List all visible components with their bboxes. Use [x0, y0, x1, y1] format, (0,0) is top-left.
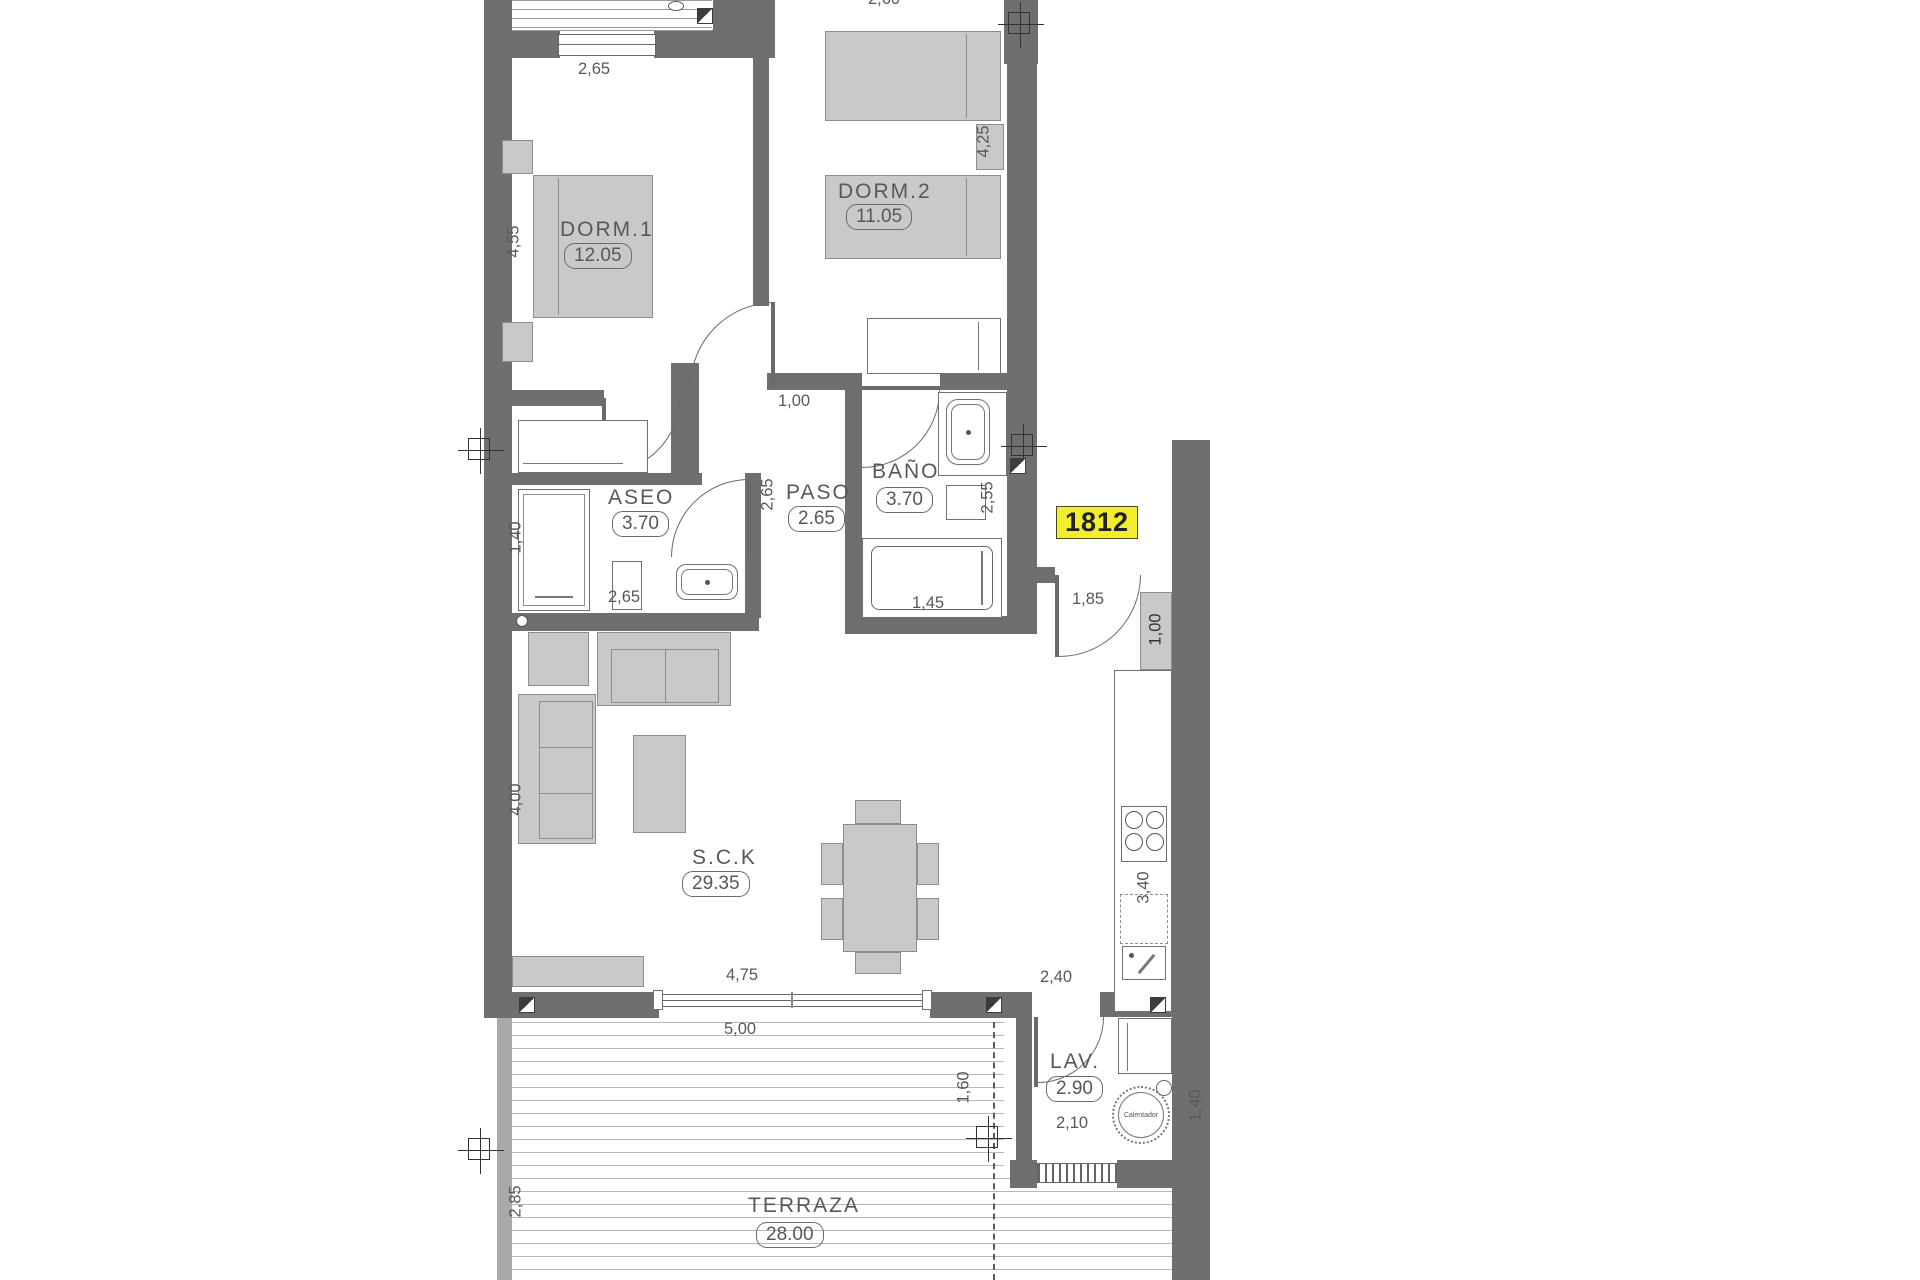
dim-lav-width: 2,10 — [1056, 1114, 1088, 1133]
room-label-dorm2: DORM.2 — [838, 180, 932, 204]
room-label-terraza: TERRAZA — [748, 1194, 860, 1218]
survey-marker-icon — [966, 1116, 1012, 1162]
room-label-bano: BAÑO — [872, 460, 940, 484]
section-marker-icon — [519, 997, 535, 1013]
living-armchair — [528, 632, 589, 686]
room-area-dorm1: 12.05 — [564, 243, 632, 269]
aseo-sink — [676, 564, 738, 600]
room-area-salon: 29.35 — [682, 871, 750, 897]
slider-cap-left — [653, 990, 663, 1010]
entry-door-arc — [1059, 575, 1141, 657]
room-area-terraza: 28.00 — [756, 1222, 824, 1248]
dorm2-door-arc — [690, 302, 775, 387]
wall-aseo-bottom — [512, 613, 759, 631]
wall-dorm1-window-left — [512, 30, 560, 58]
dining-chair-top — [855, 800, 901, 824]
dorm1-wardrobe — [518, 420, 648, 473]
room-label-lav: LAV. — [1050, 1050, 1100, 1074]
wall-lav-bottom-left — [1010, 1160, 1037, 1188]
wall-dorm2-bottom-left — [767, 373, 862, 390]
wall-dorm2-bottom-right — [940, 373, 1007, 390]
aseo-door-arc — [671, 479, 749, 557]
dorm1-nightstand-bottom — [502, 322, 533, 362]
bano-sink — [946, 399, 990, 465]
dim-bano-depth: 2,55 — [979, 481, 998, 513]
lav-window — [1037, 1163, 1117, 1183]
room-area-paso: 2.65 — [788, 506, 845, 532]
dim-kitchen-width: 2,40 — [1040, 968, 1072, 987]
wall-living-bottom-right — [930, 992, 1032, 1018]
survey-marker-icon — [458, 428, 504, 474]
dim-terrace-width: 5,00 — [724, 1020, 756, 1039]
room-label-dorm1: DORM.1 — [560, 218, 654, 242]
dim-dorm2-top-partial: 2,60 — [868, 0, 900, 9]
slider-cap-right — [922, 990, 932, 1010]
dim-kitchen-length: 3,40 — [1135, 871, 1154, 903]
dorm2-bed-1 — [825, 31, 1001, 121]
wall-entry-pillar — [1172, 440, 1210, 581]
dining-chair-bottom — [855, 952, 901, 974]
water-heater-label: Calentador — [1118, 1092, 1164, 1138]
kitchen-sink — [1122, 946, 1166, 980]
wall-bano-bottom — [845, 616, 1007, 634]
floor-plan: Calentador DORM.1 12.05 DORM.2 11.05 ASE… — [0, 0, 1920, 1280]
dim-slider-width: 4,75 — [726, 966, 758, 985]
aseo-shower — [518, 489, 590, 611]
dim-lav-depth: 1,40 — [1187, 1089, 1206, 1121]
dim-entry-door: 1,85 — [1072, 590, 1104, 609]
wall-dorm2-bano-right — [1007, 64, 1037, 634]
survey-marker-icon — [458, 1128, 504, 1174]
dim-aseo-depth: 1,40 — [507, 521, 526, 553]
wall-lav-bottom-right — [1117, 1160, 1172, 1188]
wall-dorm1-bottom — [512, 390, 604, 406]
slider-center-tick — [791, 992, 793, 1008]
dim-aseo-width: 2,65 — [608, 588, 640, 607]
wall-aseo-top — [512, 473, 702, 485]
living-loveseat — [597, 632, 731, 706]
dim-dorm2-depth: 4,25 — [975, 125, 994, 157]
dim-living-depth: 4,00 — [507, 783, 526, 815]
wall-dorm1-window-right — [654, 30, 715, 58]
living-coffee-table — [633, 735, 686, 833]
room-label-paso: PASO — [786, 481, 851, 505]
bano-door-arc — [862, 390, 940, 468]
room-label-aseo: ASEO — [608, 486, 674, 510]
corner-marker-icon — [516, 615, 528, 627]
room-area-bano: 3.70 — [876, 487, 933, 513]
wall-top-shaft — [713, 0, 775, 58]
section-marker-icon — [1150, 997, 1166, 1013]
dorm1-nightstand-top — [502, 140, 533, 174]
wall-entry-stub — [1037, 567, 1055, 583]
room-area-dorm2: 11.05 — [846, 204, 912, 230]
wall-lav-left — [1016, 1017, 1032, 1160]
dining-chair-left-2 — [821, 898, 843, 940]
section-marker-icon — [1010, 458, 1026, 474]
dim-paso-depth: 2,65 — [759, 478, 778, 510]
dim-bathtub-width: 1,45 — [912, 594, 944, 613]
dim-entry-closet: 1,00 — [1147, 613, 1166, 645]
section-marker-icon — [986, 997, 1002, 1013]
dining-chair-left-1 — [821, 843, 843, 885]
living-sofa — [518, 694, 596, 844]
dorm1-window — [558, 34, 656, 56]
tv-cabinet — [512, 956, 644, 987]
room-area-aseo: 3.70 — [612, 511, 669, 537]
dining-table — [843, 824, 917, 952]
room-area-lav: 2.90 — [1046, 1076, 1103, 1102]
wall-right-exterior — [1172, 581, 1210, 1280]
washing-machine — [1118, 1018, 1172, 1074]
dim-terrace-depth: 2,85 — [507, 1185, 526, 1217]
survey-marker-icon — [998, 2, 1044, 48]
dim-hall-door: 1,00 — [778, 392, 810, 411]
dining-chair-right-1 — [917, 843, 939, 885]
dining-chair-right-2 — [917, 898, 939, 940]
wall-dorm1-dorm2-partition — [753, 58, 769, 306]
water-heater: Calentador — [1112, 1086, 1170, 1144]
dorm2-desk — [867, 318, 1001, 374]
dim-dorm1-depth: 4,55 — [505, 225, 524, 257]
section-marker-icon — [697, 8, 713, 24]
unit-number-badge: 1812 — [1056, 506, 1138, 539]
dim-lav-offset: 1,60 — [955, 1071, 974, 1103]
room-label-salon: S.C.K — [692, 846, 757, 870]
dim-dorm1-window: 2,65 — [578, 60, 610, 79]
kitchen-hob — [1121, 806, 1167, 862]
rail-handle-icon — [668, 1, 684, 11]
